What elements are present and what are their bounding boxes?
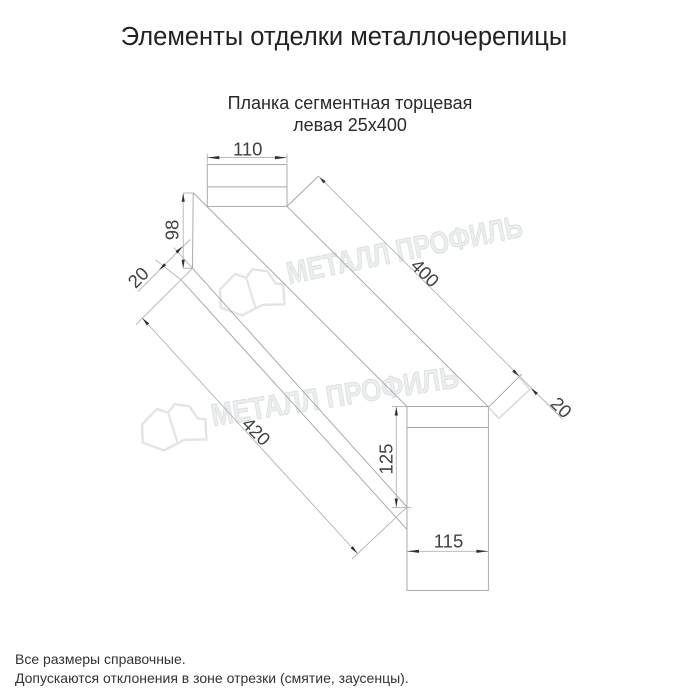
svg-text:125: 125: [376, 444, 397, 475]
svg-text:115: 115: [434, 531, 464, 552]
svg-text:98: 98: [162, 220, 183, 241]
svg-text:110: 110: [233, 139, 263, 160]
